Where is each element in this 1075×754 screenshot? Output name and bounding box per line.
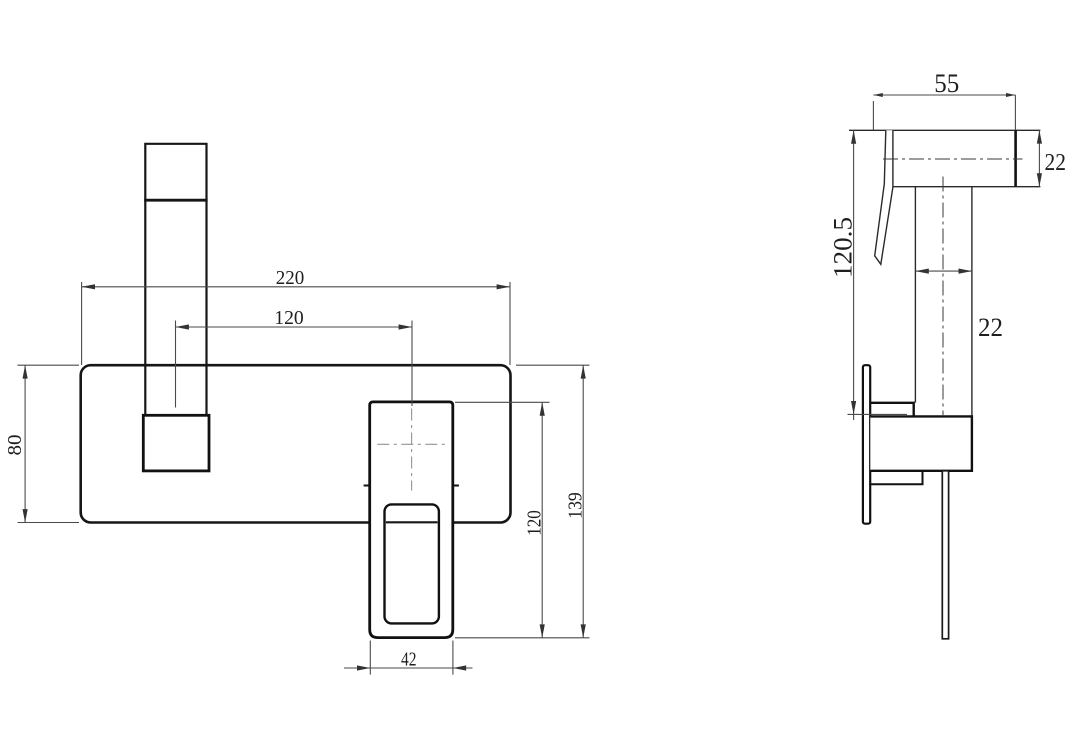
- svg-text:120.5: 120.5: [829, 217, 858, 278]
- svg-text:220: 220: [276, 267, 305, 289]
- svg-text:120: 120: [524, 510, 546, 536]
- svg-text:22: 22: [1045, 150, 1067, 176]
- svg-text:22: 22: [978, 313, 1003, 342]
- svg-text:139: 139: [565, 492, 587, 519]
- svg-text:120: 120: [274, 307, 304, 329]
- svg-text:80: 80: [4, 435, 26, 456]
- svg-text:42: 42: [401, 649, 417, 671]
- svg-text:55: 55: [934, 69, 959, 98]
